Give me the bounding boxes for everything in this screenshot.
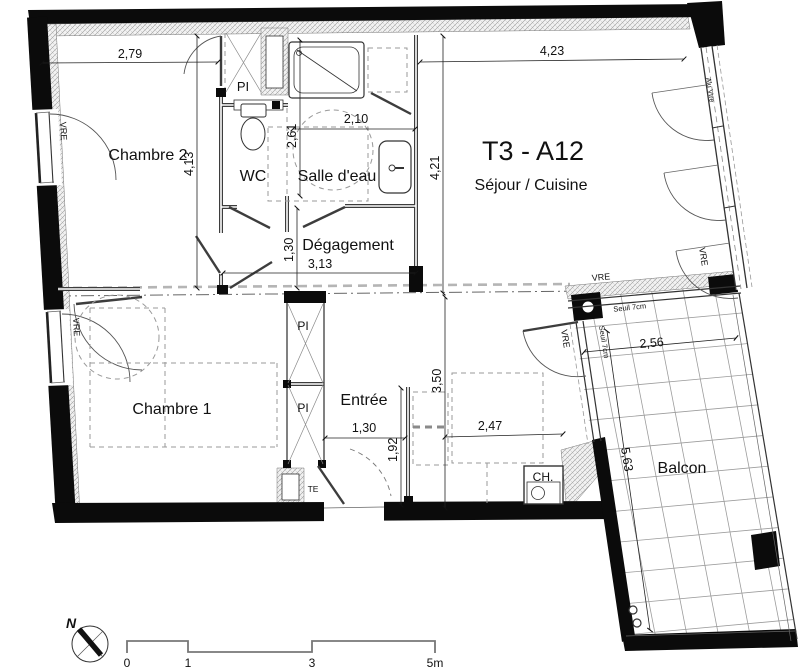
dim-balcon-width: 2,56: [639, 335, 665, 351]
labels: T3 - A12 Séjour / Cuisine Chambre 2 WC S…: [58, 44, 715, 494]
te-box: [282, 474, 299, 500]
north-arrow: N: [66, 615, 108, 662]
dim-cuisine-depth: 3,50: [430, 369, 444, 393]
dim-chambre2-width: 2,79: [118, 47, 142, 61]
window-label-vre-chambre2: VRE: [58, 122, 69, 141]
window-label-vre-sejour: VRE: [697, 247, 710, 267]
floor-plan: T3 - A12 Séjour / Cuisine Chambre 2 WC S…: [0, 0, 804, 672]
room-label-salle-eau: Salle d'eau: [298, 168, 377, 185]
dim-salle-eau-depth: 2,61: [285, 124, 299, 148]
scale-tick-1: 1: [185, 656, 192, 670]
dim-entree-depth: 1,92: [386, 438, 400, 462]
toilet-fixture: [241, 104, 266, 150]
label-te: TE: [308, 484, 319, 494]
dim-sejour-width: 4,23: [540, 44, 564, 58]
scale-tick-3: 3: [309, 656, 316, 670]
closet-label-pi-chambre2: PI: [237, 79, 249, 94]
window-swings: [50, 85, 738, 382]
dim-cuisine-width: 2,47: [478, 419, 502, 433]
room-label-chambre1: Chambre 1: [132, 401, 211, 418]
sink-fixture: [379, 141, 411, 193]
washing-machine-slot: [368, 48, 407, 92]
dim-entree-width: 1,30: [352, 421, 376, 435]
dim-degagement-length: 3,13: [308, 257, 332, 271]
scale-tick-5: 5m: [427, 656, 444, 670]
window-label-vre-balcon: VRE: [591, 271, 610, 283]
label-ch: CH.: [533, 470, 554, 484]
window-label-vre-chambre1: VRE: [71, 318, 82, 337]
room-label-sejour-cuisine: Séjour / Cuisine: [475, 177, 588, 194]
window-chambre1: [41, 309, 73, 386]
dim-chambre2-depth: 4,13: [182, 152, 196, 176]
window-label-vre-balcon-door: VRE: [559, 329, 572, 349]
plan-title: T3 - A12: [482, 136, 584, 166]
dim-degagement-width: 1,30: [282, 238, 296, 262]
closet-label-pi-entree-2: PI: [297, 401, 308, 415]
label-seuil-2: Seuil 7cm: [597, 325, 611, 359]
bed-layout-chambre1: [90, 308, 277, 447]
room-label-entree: Entrée: [340, 392, 387, 409]
room-label-balcon: Balcon: [658, 460, 707, 477]
floor-plan-drawing: T3 - A12 Séjour / Cuisine Chambre 2 WC S…: [0, 0, 804, 672]
room-label-degagement: Dégagement: [302, 237, 394, 254]
duct-box: [266, 36, 283, 88]
dim-salle-eau-width: 2,10: [344, 112, 368, 126]
north-label: N: [66, 615, 77, 631]
accessibility-rect: [268, 127, 368, 201]
scale-bar: 0 1 3 5m: [124, 641, 444, 670]
room-label-chambre2: Chambre 2: [108, 147, 187, 164]
room-label-wc: WC: [240, 168, 267, 185]
window-chambre2: [30, 109, 62, 186]
closet-label-pi-entree-1: PI: [297, 319, 308, 333]
scale-tick-0: 0: [124, 656, 131, 670]
exterior-walls: [28, 1, 798, 651]
dim-sejour-depth: 4,21: [428, 156, 442, 180]
entrance-opening: [324, 498, 384, 526]
dim-balcon-length: 5,63: [618, 446, 636, 472]
